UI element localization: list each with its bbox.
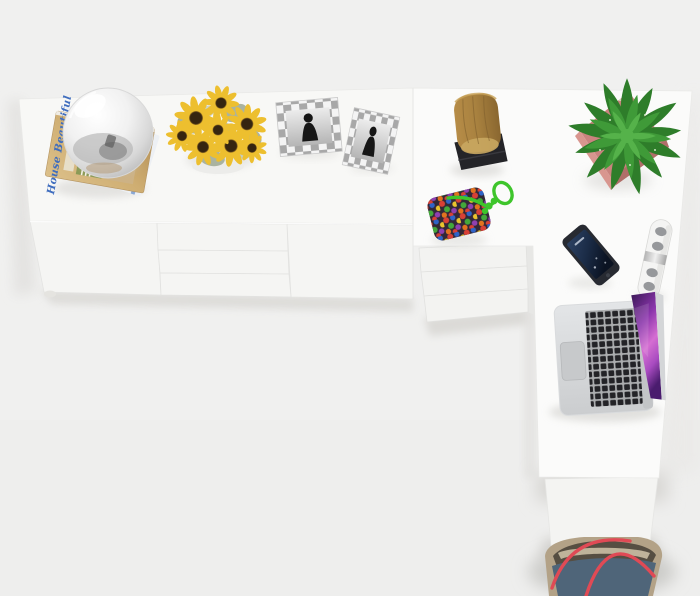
sideboard-right-door — [287, 224, 413, 299]
desk-front-panel — [545, 477, 658, 546]
sideboard-left-door — [30, 221, 161, 295]
sideboard-drawer-front-3 — [160, 273, 291, 297]
photo-frame-1 — [276, 97, 342, 156]
laptop-keyboard — [585, 308, 643, 407]
desk-drawer-unit — [419, 243, 536, 322]
globe-base-rim — [86, 163, 122, 174]
glass-globe — [63, 88, 153, 178]
laptop-trackpad — [560, 341, 586, 380]
furniture-product-image: House Beautiful — [0, 0, 700, 596]
sideboard-foot — [44, 291, 56, 298]
sideboard-drawer-front-2 — [158, 250, 289, 274]
tote-bag — [545, 537, 662, 596]
laptop — [553, 291, 670, 415]
sideboard-drawer-front-1 — [157, 223, 288, 251]
